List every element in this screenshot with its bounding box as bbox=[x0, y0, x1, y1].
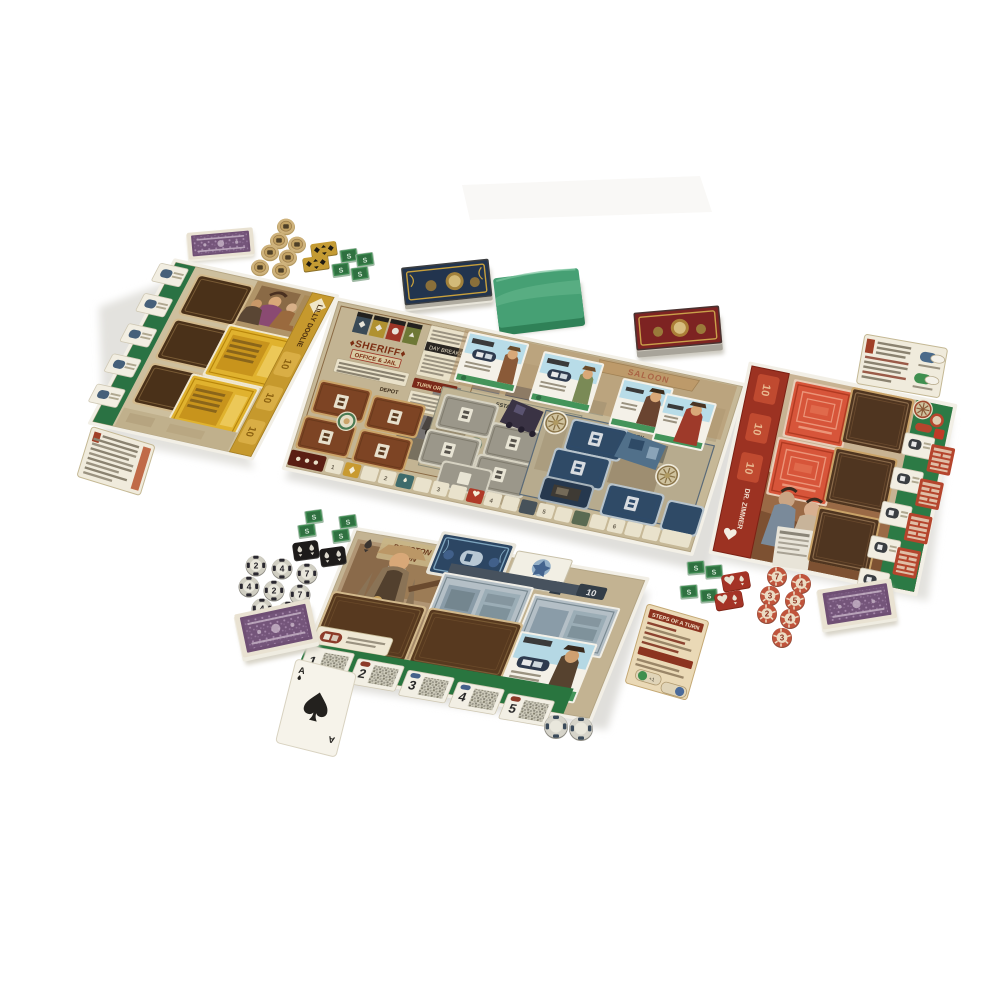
svg-text:10: 10 bbox=[750, 422, 764, 436]
svg-text:4: 4 bbox=[799, 579, 804, 588]
svg-text:10: 10 bbox=[758, 383, 772, 397]
svg-text:7: 7 bbox=[775, 572, 780, 581]
svg-text:4: 4 bbox=[280, 564, 285, 574]
svg-text:2: 2 bbox=[272, 586, 277, 596]
svg-text:7: 7 bbox=[298, 590, 303, 600]
svg-text:7: 7 bbox=[305, 569, 310, 579]
svg-text:3: 3 bbox=[780, 633, 785, 642]
svg-text:4: 4 bbox=[788, 614, 793, 623]
svg-text:3: 3 bbox=[768, 591, 773, 600]
svg-text:4: 4 bbox=[247, 582, 252, 592]
svg-text:10: 10 bbox=[742, 461, 756, 475]
svg-text:2: 2 bbox=[254, 561, 259, 571]
svg-text:2: 2 bbox=[765, 609, 770, 618]
svg-text:5: 5 bbox=[793, 596, 798, 605]
